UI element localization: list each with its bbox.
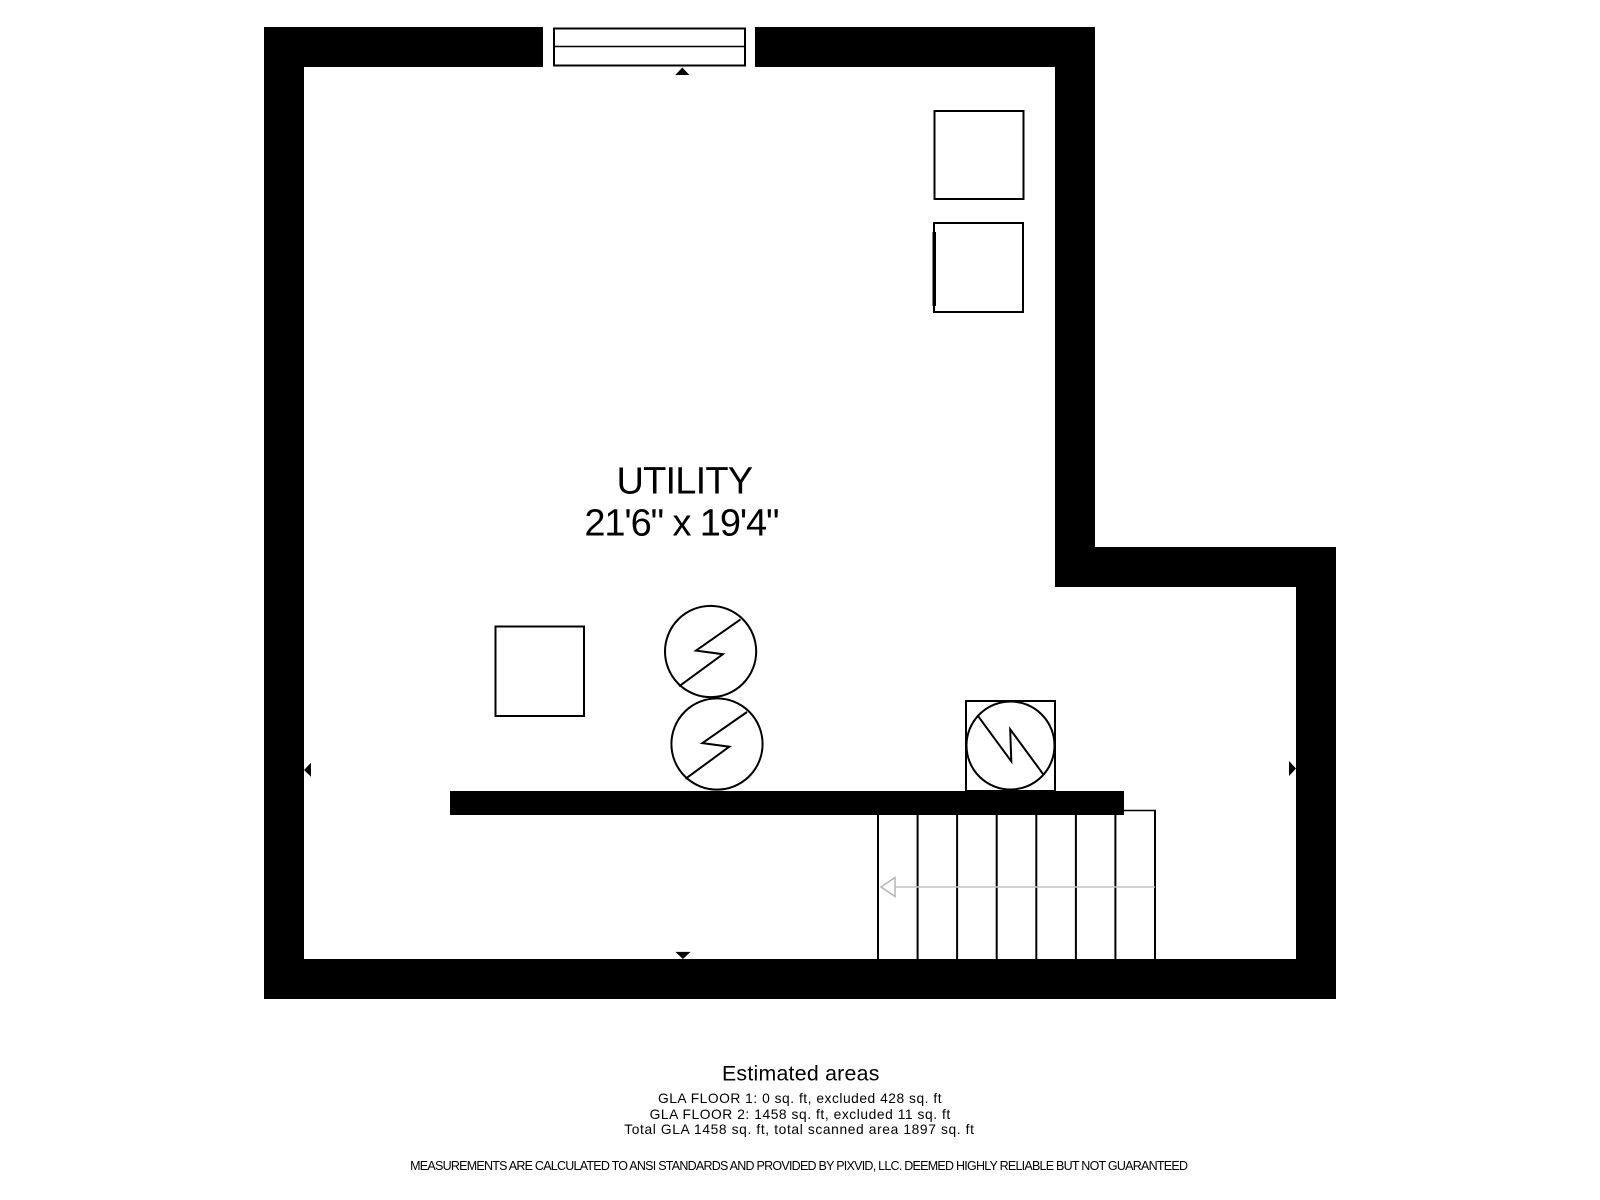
- svg-text:Estimated areas: Estimated areas: [722, 1062, 880, 1086]
- svg-text:21'6" x 19'4": 21'6" x 19'4": [584, 503, 778, 545]
- svg-text:GLA FLOOR 1: 0 sq. ft, exclude: GLA FLOOR 1: 0 sq. ft, excluded 428 sq. …: [658, 1091, 942, 1106]
- svg-text:Total GLA 1458 sq. ft, total s: Total GLA 1458 sq. ft, total scanned are…: [624, 1122, 974, 1137]
- svg-text:UTILITY: UTILITY: [616, 461, 752, 503]
- svg-text:GLA FLOOR 2: 1458 sq. ft, excl: GLA FLOOR 2: 1458 sq. ft, excluded 11 sq…: [650, 1107, 951, 1122]
- svg-text:MEASUREMENTS ARE CALCULATED TO: MEASUREMENTS ARE CALCULATED TO ANSI STAN…: [410, 1159, 1188, 1173]
